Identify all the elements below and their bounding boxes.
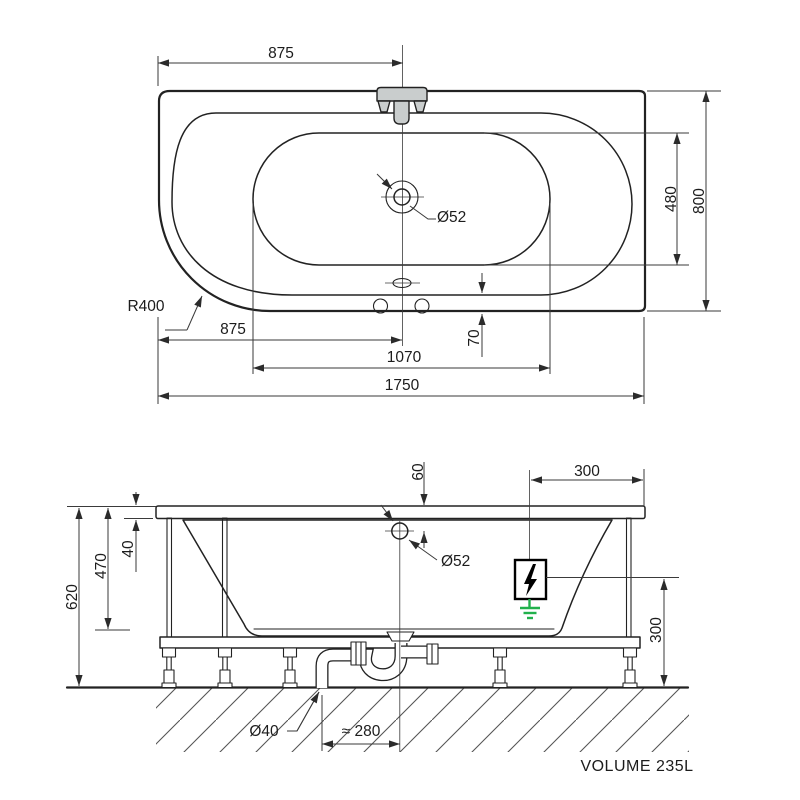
dim-label: 875 xyxy=(268,45,294,62)
dim-label: 470 xyxy=(93,553,110,579)
equipotential-box xyxy=(515,470,679,618)
dim-faucet-offset: 875 xyxy=(158,45,403,86)
dim-rim-inset: 70 xyxy=(466,273,483,357)
dim-box-offset: 300 xyxy=(531,463,644,507)
dim-basin-height: 470 xyxy=(93,508,130,630)
bathtub-dimension-drawing: 875 800 480 R400 875 xyxy=(0,0,800,800)
dim-label: 300 xyxy=(574,463,600,480)
faucet-icon xyxy=(377,88,427,125)
drain-flange xyxy=(387,632,414,641)
dim-label: 875 xyxy=(220,321,246,338)
tub-rim-front xyxy=(156,506,645,519)
dim-overall-height: 620 xyxy=(64,507,156,687)
dim-drain-offset: 875 xyxy=(158,317,402,404)
dim-basin-depth: 480 xyxy=(484,133,689,265)
dim-label: Ø40 xyxy=(249,723,279,740)
volume-label: VOLUME 235L xyxy=(580,758,693,775)
dim-label: 60 xyxy=(410,463,427,481)
dim-label: 1750 xyxy=(385,377,420,394)
dim-label: Ø52 xyxy=(437,209,466,226)
dim-label: 40 xyxy=(120,540,137,558)
dim-label: ≈ 280 xyxy=(342,723,381,740)
dim-label: 480 xyxy=(663,186,680,212)
dim-overall-depth: 800 xyxy=(647,91,721,311)
front-view: 60 300 40 470 620 xyxy=(64,462,689,752)
dim-label: 800 xyxy=(691,188,708,214)
dim-drain-from-rim: 60 xyxy=(410,462,427,548)
dim-label: 620 xyxy=(64,584,81,610)
tub-inner-rim-outline xyxy=(172,113,632,295)
dim-label: 300 xyxy=(648,617,665,643)
dim-label: Ø52 xyxy=(441,553,470,570)
technical-drawing-page: 875 800 480 R400 875 xyxy=(0,0,800,800)
waste-trap xyxy=(322,632,438,688)
dim-basin-length: 1070 xyxy=(253,203,550,374)
tub-floor-outline xyxy=(253,133,550,265)
dim-label: R400 xyxy=(127,298,164,315)
dim-rim-thickness: 40 xyxy=(120,492,153,572)
floor-hatching xyxy=(156,688,689,752)
label-drain-diameter-top: Ø52 xyxy=(377,174,466,226)
dim-box-height: 300 xyxy=(648,579,665,686)
dim-corner-radius: R400 xyxy=(127,296,202,330)
dim-label: 1070 xyxy=(387,349,422,366)
ground-symbol-icon xyxy=(520,599,540,618)
top-view: 875 800 480 R400 875 xyxy=(127,45,721,404)
dim-label: 70 xyxy=(466,329,483,347)
